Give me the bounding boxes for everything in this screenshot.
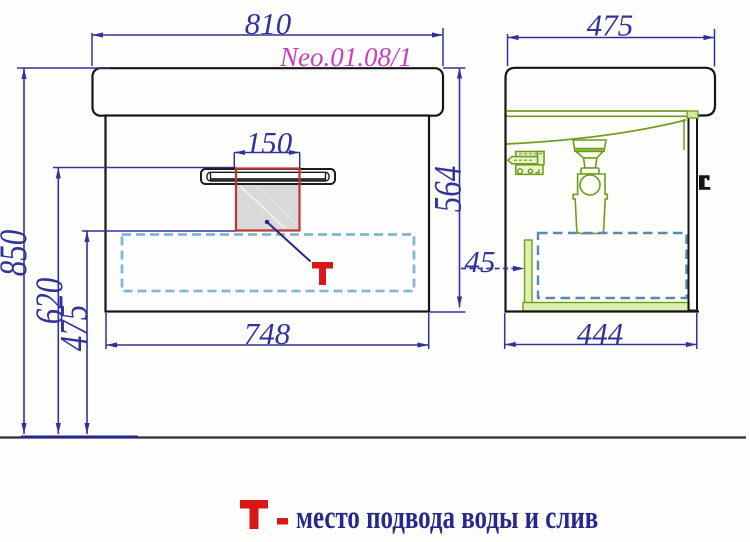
svg-text:444: 444 xyxy=(577,316,624,351)
svg-text:45: 45 xyxy=(465,244,496,279)
svg-text:810: 810 xyxy=(245,6,292,41)
svg-text:150: 150 xyxy=(246,125,293,160)
svg-text:850: 850 xyxy=(0,229,35,276)
svg-text:564: 564 xyxy=(426,166,469,212)
svg-text:475: 475 xyxy=(52,305,95,351)
svg-text:место подвода воды и слив: место подвода воды и слив xyxy=(296,500,598,536)
svg-text:748: 748 xyxy=(244,316,291,351)
svg-text:475: 475 xyxy=(587,8,634,43)
